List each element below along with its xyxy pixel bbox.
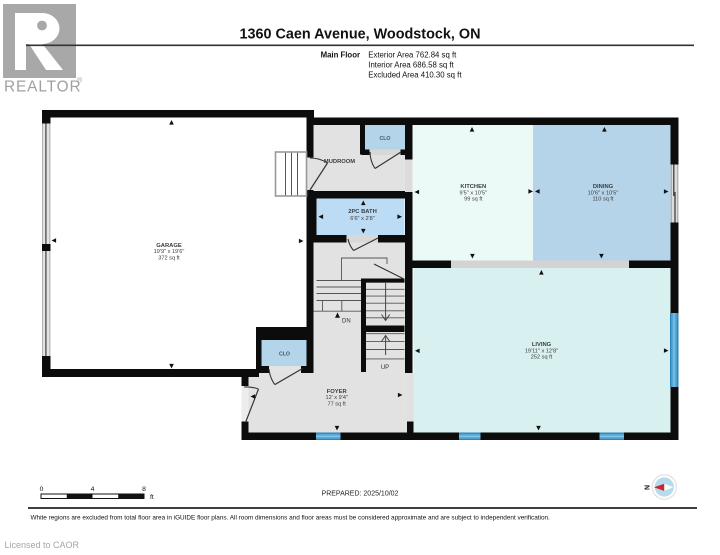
svg-text:LIVING: LIVING bbox=[532, 342, 552, 348]
svg-text:8: 8 bbox=[142, 486, 146, 493]
svg-text:12' x 9'4": 12' x 9'4" bbox=[325, 395, 347, 401]
svg-text:CLO: CLO bbox=[380, 136, 391, 142]
svg-text:FOYER: FOYER bbox=[327, 389, 348, 395]
svg-text:99 sq ft: 99 sq ft bbox=[464, 197, 483, 203]
svg-text:10'6" x 10'5": 10'6" x 10'5" bbox=[588, 191, 619, 197]
svg-text:White regions are excluded fro: White regions are excluded from total fl… bbox=[31, 515, 551, 522]
svg-text:DN: DN bbox=[342, 319, 351, 325]
svg-text:372 sq ft: 372 sq ft bbox=[158, 255, 180, 261]
svg-text:110 sq ft: 110 sq ft bbox=[592, 197, 613, 203]
svg-text:REALTOR: REALTOR bbox=[4, 79, 82, 96]
svg-text:ft: ft bbox=[150, 494, 154, 501]
svg-text:9'5" x 10'5": 9'5" x 10'5" bbox=[460, 191, 488, 197]
svg-text:6'6" x 2'8": 6'6" x 2'8" bbox=[350, 216, 374, 222]
svg-text:Excluded Area 410.30 sq ft: Excluded Area 410.30 sq ft bbox=[368, 71, 462, 80]
svg-text:1360 Caen Avenue, Woodstock, O: 1360 Caen Avenue, Woodstock, ON bbox=[240, 27, 481, 43]
svg-text:PREPARED: 2025/10/02: PREPARED: 2025/10/02 bbox=[322, 491, 399, 498]
svg-text:4: 4 bbox=[91, 486, 95, 493]
svg-text:Licensed to CAOR: Licensed to CAOR bbox=[5, 540, 80, 550]
svg-text:MUDROOM: MUDROOM bbox=[324, 159, 355, 165]
svg-text:®: ® bbox=[77, 77, 83, 85]
svg-text:Exterior Area 762.84 sq ft: Exterior Area 762.84 sq ft bbox=[368, 51, 457, 60]
svg-text:2PC BATH: 2PC BATH bbox=[348, 209, 377, 215]
svg-text:DINING: DINING bbox=[593, 184, 614, 190]
svg-text:GARAGE: GARAGE bbox=[156, 243, 182, 249]
svg-text:Main Floor: Main Floor bbox=[321, 51, 360, 60]
svg-text:19'9" x 19'6": 19'9" x 19'6" bbox=[154, 249, 185, 255]
svg-text:19'11" x 12'8": 19'11" x 12'8" bbox=[525, 348, 558, 354]
svg-text:77 sq ft: 77 sq ft bbox=[328, 401, 347, 407]
svg-text:UP: UP bbox=[381, 365, 389, 371]
svg-text:N: N bbox=[645, 485, 652, 490]
svg-text:0: 0 bbox=[40, 486, 44, 493]
svg-text:KITCHEN: KITCHEN bbox=[460, 184, 486, 190]
svg-text:CLO: CLO bbox=[279, 352, 290, 358]
svg-text:252 sq ft: 252 sq ft bbox=[531, 354, 553, 360]
svg-text:Interior Area 686.58 sq ft: Interior Area 686.58 sq ft bbox=[368, 60, 454, 69]
